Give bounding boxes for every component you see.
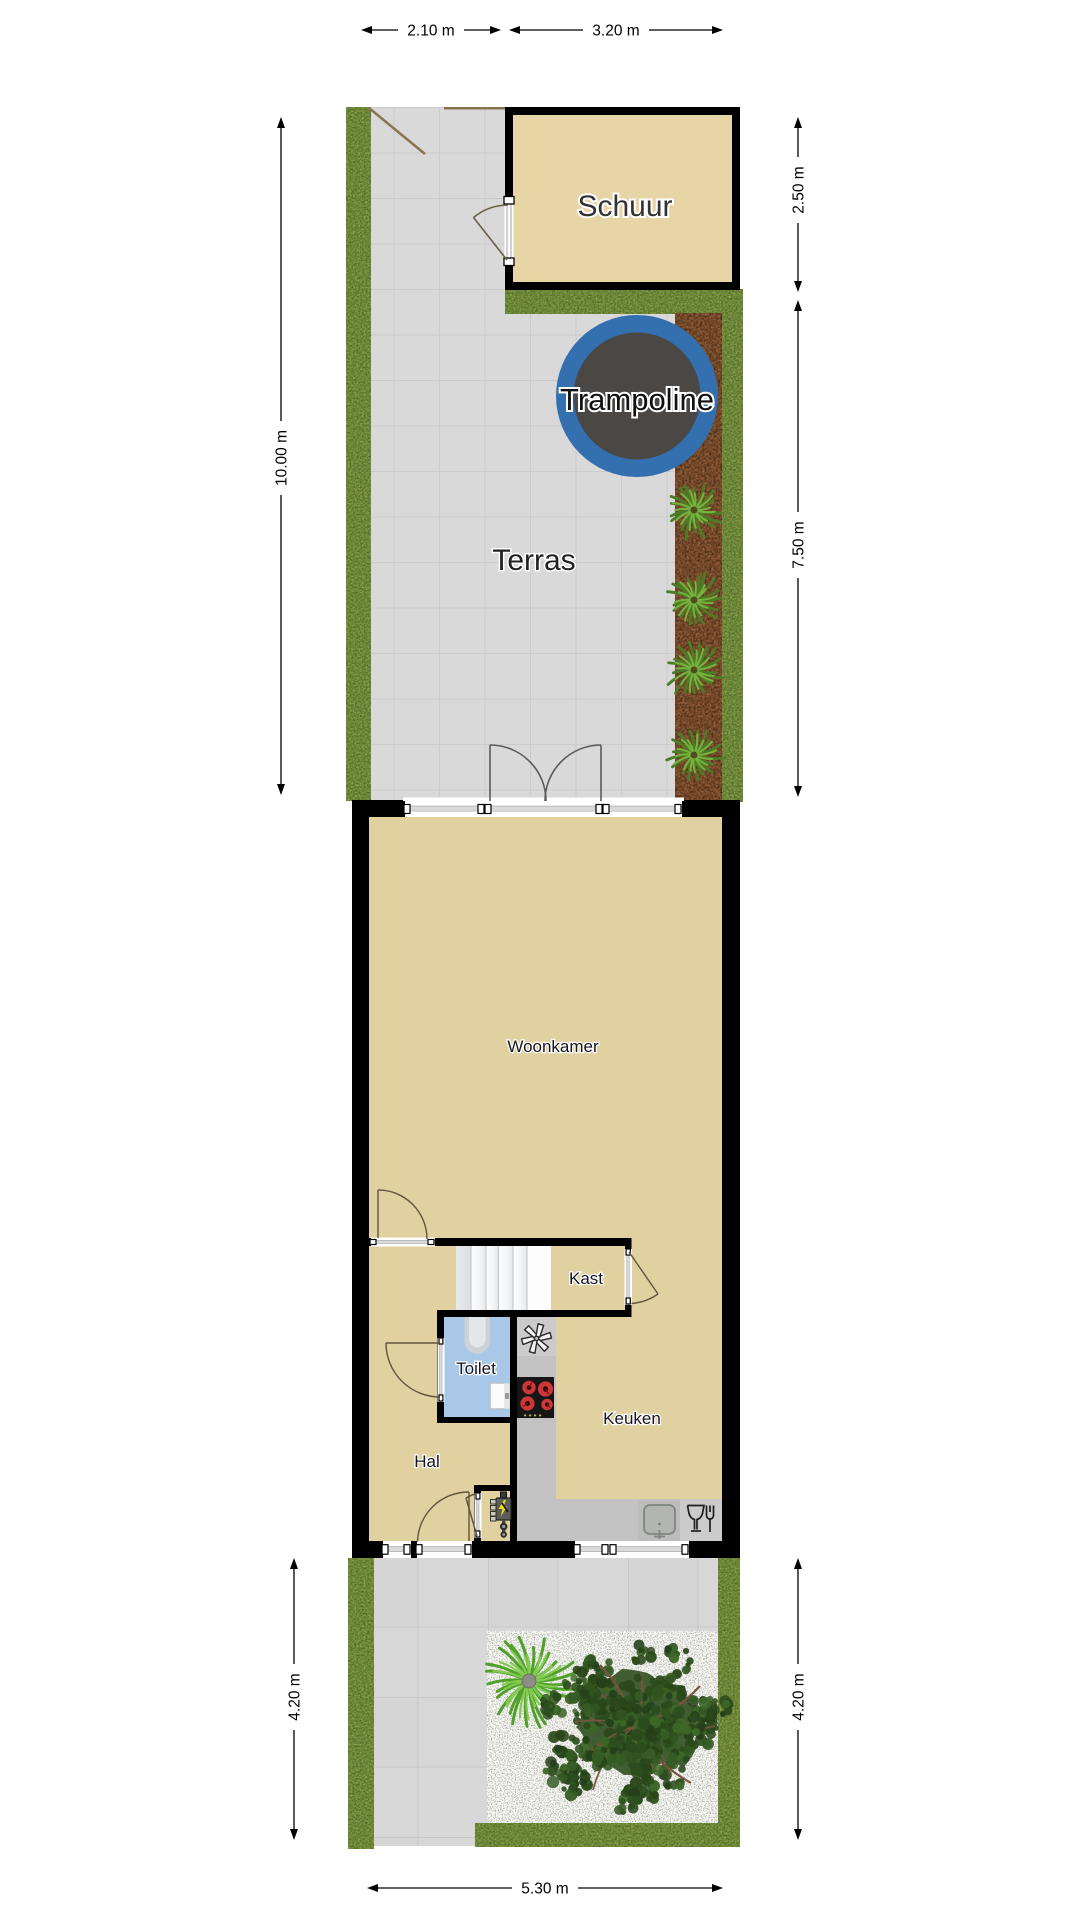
svg-text:4.20 m: 4.20 m (287, 1673, 304, 1720)
svg-text:2.10 m: 2.10 m (407, 23, 454, 40)
svg-text:Terras: Terras (492, 544, 575, 577)
svg-text:Trampoline: Trampoline (560, 382, 714, 417)
svg-text:Woonkamer: Woonkamer (507, 1037, 599, 1056)
svg-text:Hal: Hal (414, 1452, 440, 1471)
svg-text:3.20 m: 3.20 m (592, 23, 639, 40)
svg-text:Schuur: Schuur (577, 190, 672, 223)
svg-text:4.20 m: 4.20 m (791, 1673, 808, 1720)
svg-text:7.50 m: 7.50 m (791, 521, 808, 568)
svg-text:2.50 m: 2.50 m (791, 166, 808, 213)
svg-text:Kast: Kast (569, 1269, 603, 1288)
svg-text:10.00 m: 10.00 m (274, 430, 291, 486)
svg-text:Toilet: Toilet (456, 1359, 496, 1378)
svg-text:Keuken: Keuken (603, 1409, 661, 1428)
svg-text:5.30 m: 5.30 m (521, 1881, 568, 1898)
